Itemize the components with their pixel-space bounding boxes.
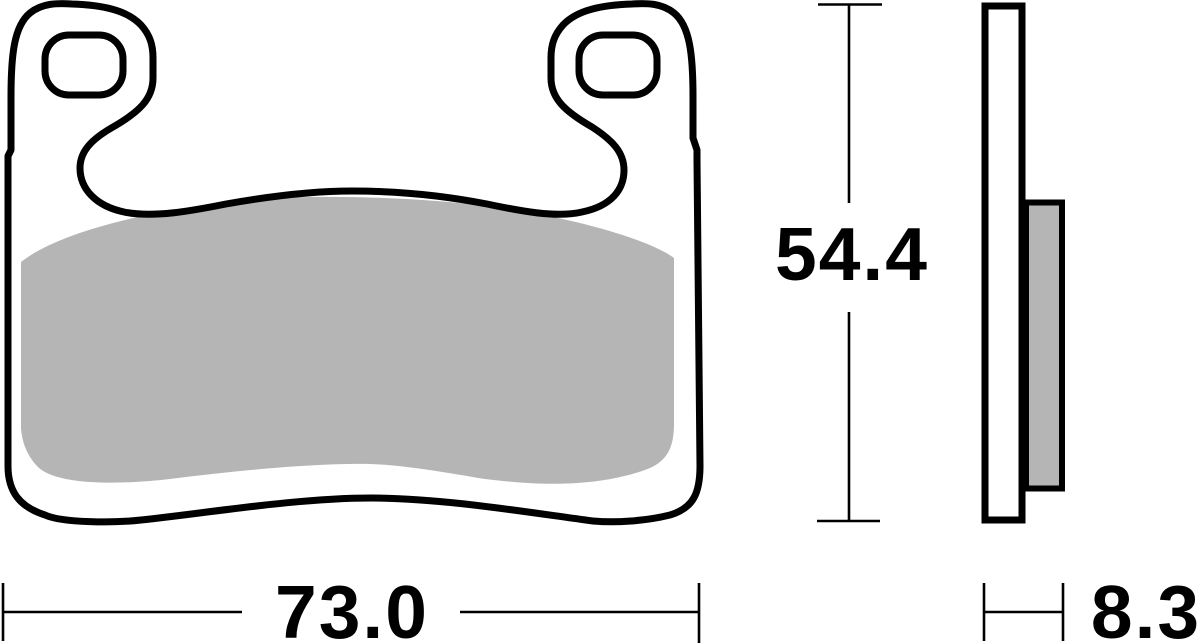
mounting-hole-left bbox=[45, 35, 123, 95]
dimension-width: 73.0 bbox=[3, 570, 699, 643]
side-friction-material bbox=[1026, 203, 1062, 489]
thickness-dimension-label: 8.3 bbox=[1091, 570, 1200, 643]
mounting-hole-right bbox=[579, 35, 657, 95]
width-dimension-label: 73.0 bbox=[275, 570, 429, 643]
front-view bbox=[8, 4, 700, 522]
height-dimension-label: 54.4 bbox=[775, 212, 929, 296]
dimension-height: 54.4 bbox=[775, 5, 929, 522]
dimension-thickness: 8.3 bbox=[984, 570, 1200, 643]
drawing-canvas: 73.0 54.4 8.3 bbox=[0, 0, 1200, 643]
side-backplate bbox=[985, 6, 1022, 520]
brake-pad-technical-drawing: 73.0 54.4 8.3 bbox=[0, 0, 1200, 643]
friction-material bbox=[21, 197, 674, 484]
side-view bbox=[985, 6, 1062, 520]
